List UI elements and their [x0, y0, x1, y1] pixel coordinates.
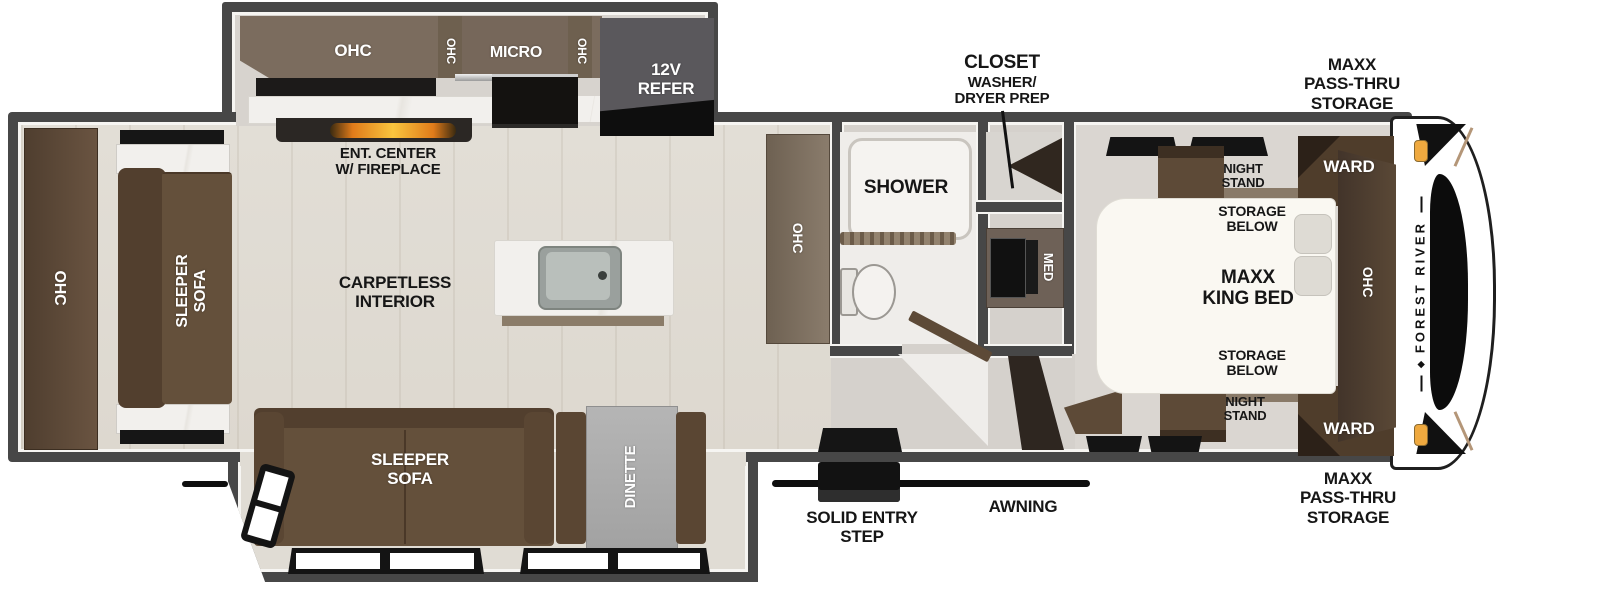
closet-title-label: CLOSET	[940, 52, 1064, 74]
bedroom-left-wall	[1062, 122, 1076, 354]
sofa-cushion-divider	[404, 430, 406, 544]
pillow-bottom	[1294, 256, 1332, 296]
tv-panel	[256, 78, 436, 97]
towel-bar	[840, 232, 956, 245]
night-stand-bottom	[1160, 388, 1226, 442]
pillow-top	[1294, 214, 1332, 254]
closet-bottom-wall	[976, 200, 1072, 214]
bedroom-window-bottom-right	[1148, 436, 1202, 452]
toilet-bowl	[852, 264, 896, 320]
pass-thru-bottom-label: MAXX PASS-THRU STORAGE	[1278, 466, 1418, 530]
kitchen-ohc-strip-right	[568, 16, 592, 78]
bath-bottom-wall-left	[830, 344, 902, 358]
awning-label: AWNING	[980, 497, 1066, 517]
slide-window-left	[288, 548, 484, 574]
fireplace-flame	[330, 123, 456, 138]
entry-step-box	[818, 462, 900, 502]
night-stand-top	[1158, 146, 1224, 200]
slide-window-right	[520, 548, 710, 574]
sofa-armrest-right	[524, 412, 554, 544]
sofa-back	[254, 408, 554, 430]
marker-light-bottom	[1414, 424, 1428, 446]
kitchen-ohc-strip-left	[438, 16, 462, 78]
med-cabinet-panel	[990, 238, 1026, 298]
med-cabinet-panel2	[1026, 240, 1038, 294]
bedroom-window-bottom-left	[1086, 436, 1142, 452]
rv-floor-plan: ◆ FOREST RIVER OHC OHC MICRO OHC 12V REF…	[0, 0, 1600, 592]
dinette-table	[586, 406, 678, 550]
micro-cabinet	[462, 16, 568, 78]
rear-sofa-seat	[162, 172, 232, 404]
shower-pan	[848, 138, 972, 240]
closet-sub-label: WASHER/ DRYER PREP	[940, 74, 1064, 108]
entry-interior-step	[818, 428, 902, 452]
rear-end-table-bottom-base	[120, 430, 224, 444]
bath-bottom-wall-right	[984, 344, 1072, 358]
rear-ohc-cabinet	[24, 128, 98, 450]
counter-right-of-range	[578, 96, 600, 122]
range-cooktop	[492, 74, 578, 128]
rear-sofa-back	[118, 168, 166, 408]
faucet	[598, 271, 607, 280]
pantry-ohc-cabinet	[766, 134, 830, 344]
marker-light-top	[1414, 140, 1428, 162]
headboard-ohc-cabinet	[1338, 150, 1396, 442]
dinette-bench-right	[676, 412, 706, 544]
rear-awning-line	[182, 481, 228, 487]
pass-thru-top-label: MAXX PASS-THRU STORAGE	[1282, 52, 1422, 116]
dinette-bench-left	[556, 412, 586, 544]
solid-entry-step-label: SOLID ENTRY STEP	[790, 506, 934, 550]
